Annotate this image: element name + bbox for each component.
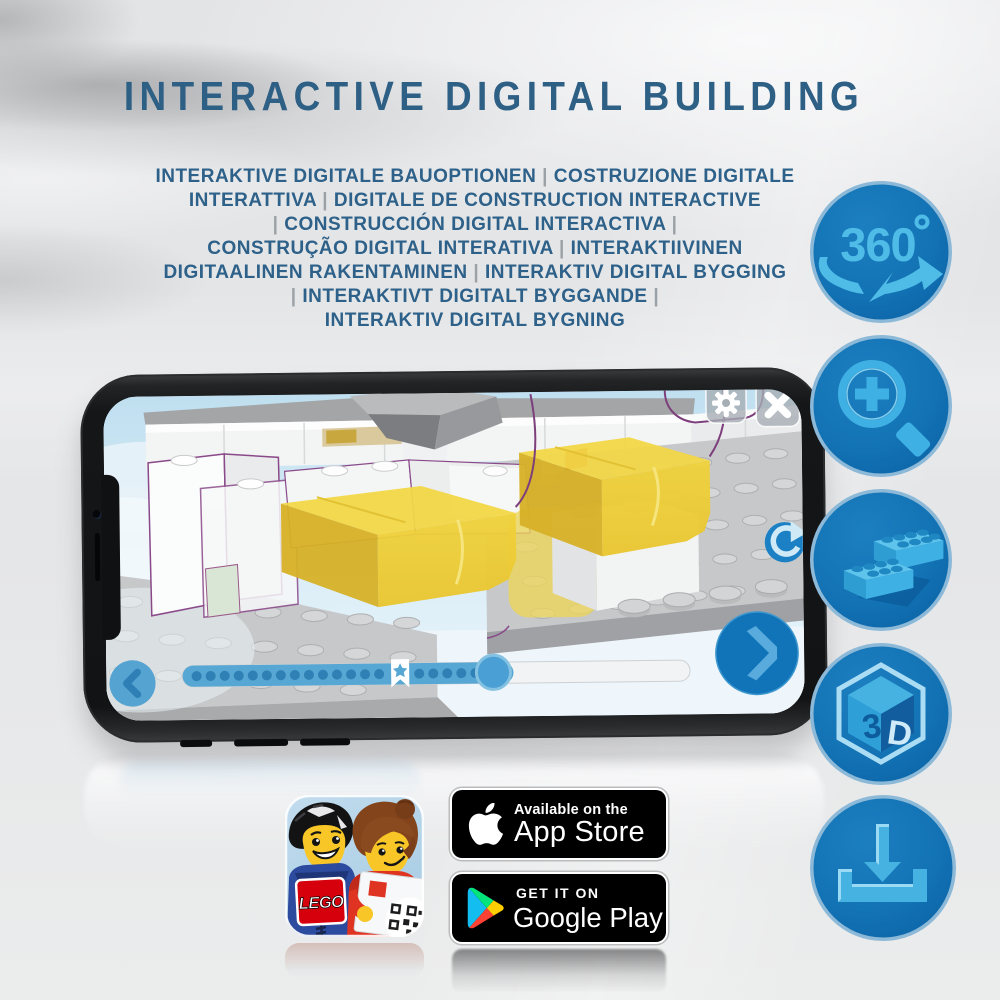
svg-text:360: 360 <box>840 218 915 271</box>
svg-text:D: D <box>885 713 915 754</box>
svg-text:LEGO: LEGO <box>298 893 344 913</box>
